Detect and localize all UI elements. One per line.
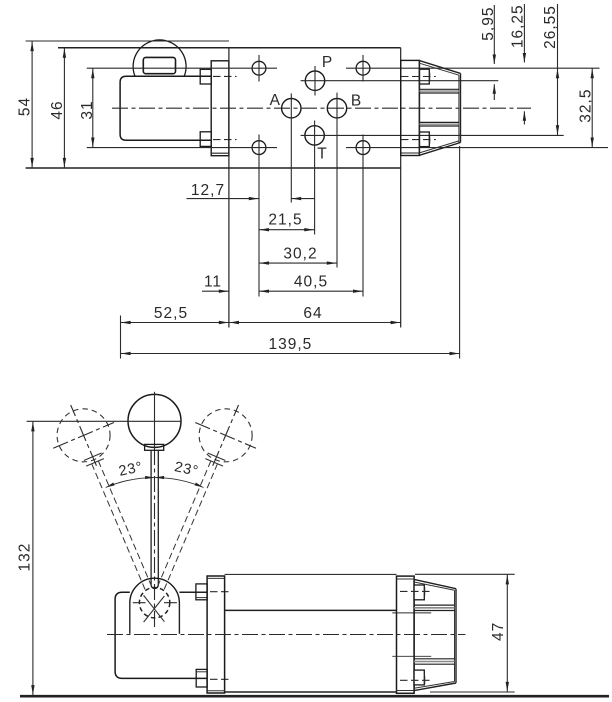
svg-text:16,25: 16,25 [510,4,527,48]
svg-text:26,55: 26,55 [542,5,559,49]
svg-text:B: B [351,92,362,109]
svg-text:52,5: 52,5 [154,305,188,322]
svg-text:32,5: 32,5 [578,89,595,123]
svg-text:46: 46 [49,100,66,119]
svg-text:5,95: 5,95 [480,7,497,41]
svg-text:T: T [317,146,327,163]
svg-text:47: 47 [490,622,507,641]
svg-text:11: 11 [204,274,222,291]
svg-text:64: 64 [303,305,322,322]
svg-text:40,5: 40,5 [294,274,328,291]
svg-text:12,7: 12,7 [191,182,225,199]
svg-text:54: 54 [17,97,34,116]
svg-text:30,2: 30,2 [283,246,317,263]
svg-text:132: 132 [17,543,34,572]
svg-text:P: P [322,54,333,71]
svg-text:21,5: 21,5 [268,212,302,229]
svg-text:A: A [270,92,281,109]
svg-text:31: 31 [79,100,96,119]
svg-text:139,5: 139,5 [269,336,313,353]
